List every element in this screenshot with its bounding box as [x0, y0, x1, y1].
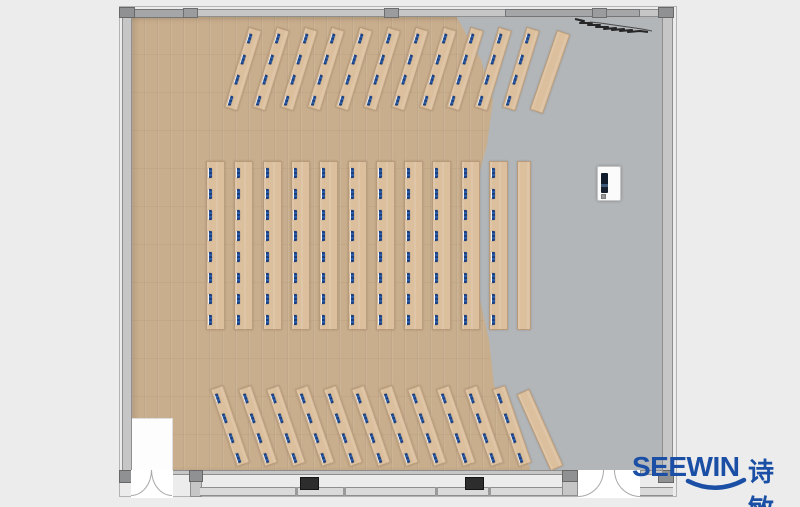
structural-column-2 [465, 477, 484, 490]
corner-right-door [562, 470, 578, 482]
window-mullion-4 [488, 487, 491, 496]
window-mullion-1 [295, 487, 298, 496]
structural-column-1 [300, 477, 319, 490]
window-mullion-3 [435, 487, 438, 496]
wall-pier-top-1 [183, 8, 198, 18]
brand-logo: SEEWIN 诗敏 [628, 449, 798, 497]
corner-top-left [119, 7, 135, 18]
window-band-bottom [200, 487, 562, 496]
brand-logo-swoosh [684, 477, 748, 495]
sketch-annotation [570, 12, 665, 36]
wall-bottom-main [172, 470, 578, 475]
outer-wall-line [119, 6, 677, 497]
brand-logo-chinese: 诗敏 [748, 452, 798, 507]
wall-left [122, 9, 132, 483]
wall-right [662, 9, 673, 483]
wall-pier-top-2 [384, 8, 399, 18]
corner-left-door [189, 470, 203, 482]
floor-plan-scene: SEEWIN 诗敏 [0, 0, 800, 507]
window-mullion-2 [343, 487, 346, 496]
